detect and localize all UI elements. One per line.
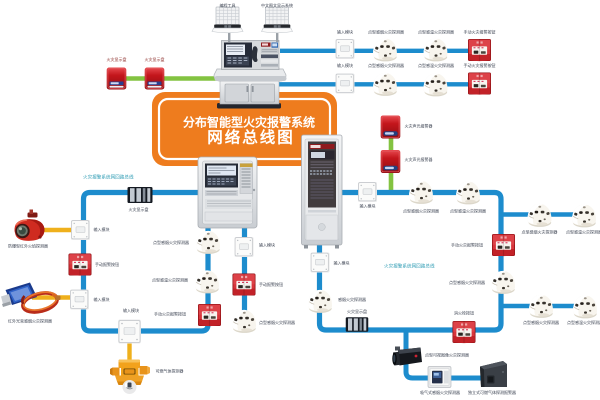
svg-text:火灾声光报警器: 火灾声光报警器 — [405, 123, 433, 129]
svg-text:点型感温火灾探测器: 点型感温火灾探测器 — [152, 277, 188, 283]
svg-text:输入模块: 输入模块 — [360, 203, 376, 209]
svg-text:编程工具: 编程工具 — [220, 2, 236, 8]
svg-text:输入模块: 输入模块 — [337, 62, 353, 68]
svg-text:消火栓按钮: 消火栓按钮 — [454, 310, 474, 316]
svg-text:手动火灾报警按钮: 手动火灾报警按钮 — [154, 311, 186, 317]
svg-text:火灾显示盘: 火灾显示盘 — [347, 308, 367, 314]
svg-text:点型感温火灾探测器: 点型感温火灾探测器 — [418, 62, 454, 68]
svg-text:火灾声光报警器: 火灾声光报警器 — [405, 156, 433, 162]
svg-text:输入模块: 输入模块 — [334, 260, 350, 266]
svg-text:点型感烟火灾探测器: 点型感烟火灾探测器 — [523, 319, 559, 325]
svg-text:输入模块: 输入模块 — [94, 296, 110, 302]
svg-text:火灾显示盘: 火灾显示盘 — [107, 56, 127, 62]
svg-text:输入模块: 输入模块 — [337, 29, 353, 35]
svg-text:输入模块: 输入模块 — [94, 226, 110, 232]
svg-text:感烟火灾探测器: 感烟火灾探测器 — [338, 296, 366, 302]
svg-text:中文图文显示系统: 中文图文显示系统 — [261, 2, 293, 8]
svg-text:独立式可燃气体探测报警器: 独立式可燃气体探测报警器 — [468, 389, 516, 395]
svg-text:点型感温火灾探测器: 点型感温火灾探测器 — [567, 319, 600, 325]
svg-text:点型感烟火灾探测器: 点型感烟火灾探测器 — [153, 239, 189, 245]
svg-text:可燃气体探测器: 可燃气体探测器 — [156, 368, 184, 374]
svg-text:点型感烟火灾探测器: 点型感烟火灾探测器 — [259, 319, 295, 325]
svg-text:手动报警按钮: 手动报警按钮 — [259, 281, 283, 287]
svg-text:输入模块: 输入模块 — [259, 242, 275, 248]
svg-text:点型感温火灾探测器: 点型感温火灾探测器 — [450, 208, 486, 214]
svg-text:火灾报警系统网回路总线: 火灾报警系统网回路总线 — [384, 263, 435, 270]
svg-text:点型感烟火灾探测器: 点型感烟火灾探测器 — [368, 62, 404, 68]
svg-text:点型感烟火灾探测器: 点型感烟火灾探测器 — [449, 279, 485, 285]
svg-text:点型感烟火灾探测器: 点型感烟火灾探测器 — [403, 208, 439, 214]
svg-text:网络总线图: 网络总线图 — [207, 128, 295, 147]
svg-text:手动报警按钮: 手动报警按钮 — [95, 261, 119, 267]
svg-text:分布智能型火灾报警系统: 分布智能型火灾报警系统 — [183, 115, 315, 130]
svg-text:火灾显示盘: 火灾显示盘 — [145, 56, 165, 62]
svg-text:火灾报警系统网回路总线: 火灾报警系统网回路总线 — [83, 174, 134, 181]
svg-text:手动火灾报警按钮: 手动火灾报警按钮 — [451, 242, 483, 248]
svg-text:吸气式感烟火灾探测器: 吸气式感烟火灾探测器 — [420, 389, 460, 395]
svg-text:红外光束感烟火灾探测器: 红外光束感烟火灾探测器 — [8, 318, 52, 324]
svg-text:输入模块: 输入模块 — [123, 307, 139, 313]
svg-text:点型感烟火灾探测器: 点型感烟火灾探测器 — [368, 29, 404, 35]
svg-text:点型感温火灾探测器: 点型感温火灾探测器 — [418, 29, 454, 35]
svg-text:防爆型红外火焰探测器: 防爆型红外火焰探测器 — [8, 243, 48, 249]
svg-text:手动火灾报警按钮: 手动火灾报警按钮 — [464, 62, 496, 68]
svg-text:点型可视图像火灾探测器: 点型可视图像火灾探测器 — [425, 352, 469, 358]
svg-text:手动火灾报警按钮: 手动火灾报警按钮 — [464, 29, 496, 35]
svg-text:点型感温火灾探测器: 点型感温火灾探测器 — [566, 229, 600, 235]
svg-text:火灾显示盘: 火灾显示盘 — [129, 206, 149, 212]
svg-text:点型感烟火灾探测器: 点型感烟火灾探测器 — [522, 229, 558, 235]
